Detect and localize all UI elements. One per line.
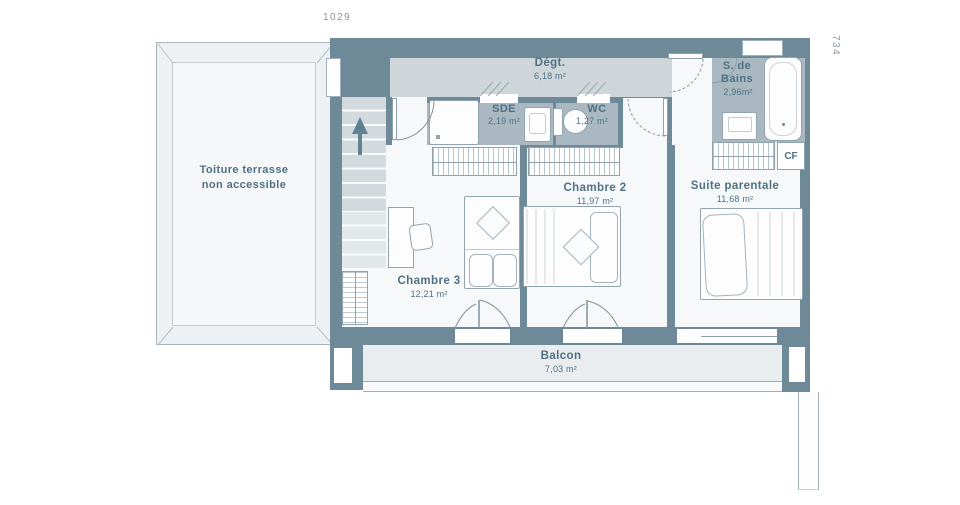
balcony-right-window	[789, 347, 805, 382]
bains-sink	[722, 112, 757, 140]
lower-floor-wall-projection	[798, 392, 819, 490]
closet-chambre2	[528, 147, 620, 176]
terrace-label-line1: Toiture terrasse	[200, 164, 289, 177]
balcony-right-wall	[782, 343, 810, 392]
toilet-tank	[553, 108, 563, 136]
chambre3-area: 12,21 m²	[410, 289, 447, 300]
chambre3-label: Chambre 3	[397, 275, 460, 288]
shower-tray	[429, 100, 479, 145]
closet-chambre3	[432, 147, 517, 176]
closet-suite	[712, 142, 775, 170]
bains-label-line2: Bains	[721, 73, 753, 86]
window-left-wall	[326, 58, 341, 97]
cf-box: CF	[777, 142, 805, 170]
chair-chambre3	[408, 223, 433, 252]
balcon-label: Balcon	[541, 350, 582, 363]
window-bains-top	[742, 40, 783, 56]
chambre2-label: Chambre 2	[563, 182, 626, 195]
french-door-chambre3-opening	[455, 329, 510, 343]
sliding-door-wc-opening	[577, 94, 610, 103]
sde-label: SDE	[492, 103, 516, 116]
wc-label: WC	[587, 103, 606, 116]
balcon-area: 7,03 m²	[545, 364, 577, 375]
chambre2-area: 11,97 m²	[577, 196, 613, 207]
bains-area: 2,96m²	[723, 87, 752, 98]
suite-label: Suite parentale	[691, 180, 779, 193]
sliding-door-sde-opening	[480, 94, 518, 103]
bathtub	[764, 57, 802, 141]
chambre2-entry	[623, 98, 667, 148]
floor-plan-page: { "plan": { "dimension_top": "1029", "di…	[0, 0, 960, 505]
bed-single-chambre3	[464, 196, 520, 289]
suite-sliding-window	[677, 329, 777, 343]
staircase-lower-steps	[342, 212, 386, 268]
degt-area: 6,18 m²	[534, 71, 566, 82]
degt-label: Dégt.	[535, 57, 566, 70]
bed-double-chambre2	[523, 206, 621, 287]
door-leaf-chambre3	[392, 98, 397, 140]
sde-sink	[524, 107, 551, 142]
wc-area: 1,27 m²	[576, 116, 608, 127]
balcony-left-window	[334, 348, 352, 383]
bains-label-line1: S. de	[723, 60, 751, 73]
french-door-chambre2-opening	[563, 329, 622, 343]
terrace-label-line2: non accessible	[202, 179, 286, 192]
balcony-left-wall	[330, 345, 363, 390]
door-leaf-chambre2	[663, 98, 668, 136]
staircase	[342, 97, 386, 268]
dimension-top: 1029	[323, 12, 351, 23]
suite-entry	[672, 58, 712, 145]
bed-double-suite	[700, 208, 803, 300]
roof-terrace: Toiture terrasse non accessible	[156, 42, 333, 345]
balcony-edge	[363, 381, 782, 392]
hallway-degt-floor	[390, 58, 672, 97]
chambre3-door-zone	[392, 97, 427, 145]
sde-area: 2,19 m²	[488, 116, 520, 127]
radiator	[342, 271, 368, 325]
suite-area: 11,68 m²	[717, 194, 753, 205]
door-leaf-suite	[668, 53, 703, 59]
roof-corner-lines	[157, 43, 334, 346]
dimension-right: 734	[830, 35, 841, 56]
